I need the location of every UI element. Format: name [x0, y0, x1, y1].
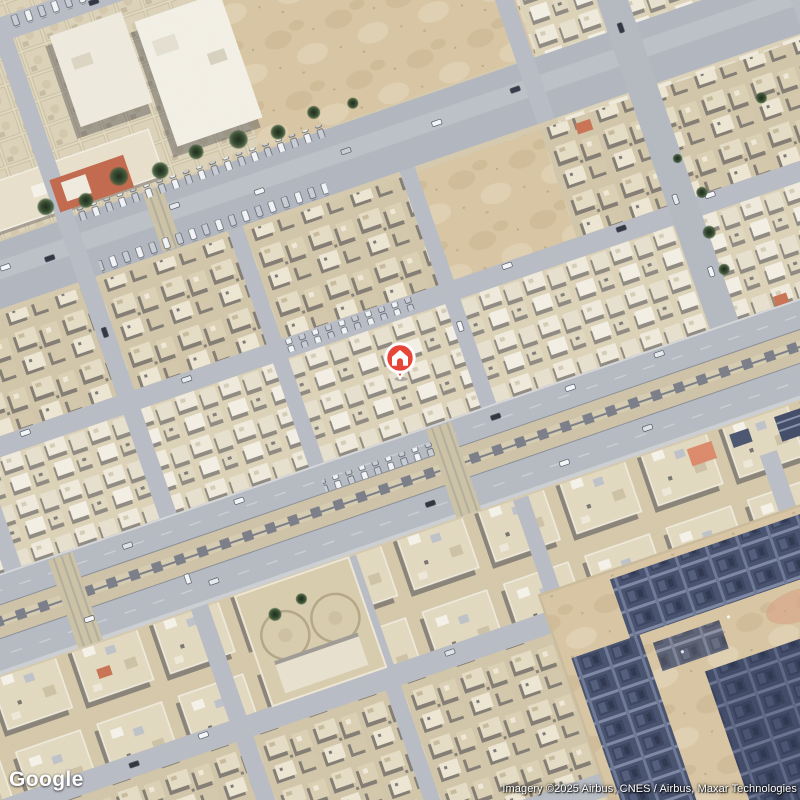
satellite-imagery: [0, 0, 800, 800]
map-viewport[interactable]: Google Imagery ©2025 Airbus, CNES / Airb…: [0, 0, 800, 800]
google-logo[interactable]: Google: [9, 768, 84, 792]
map-attribution: Imagery ©2025 Airbus, CNES / Airbus, Max…: [502, 783, 797, 795]
grain-overlay: [0, 0, 800, 800]
